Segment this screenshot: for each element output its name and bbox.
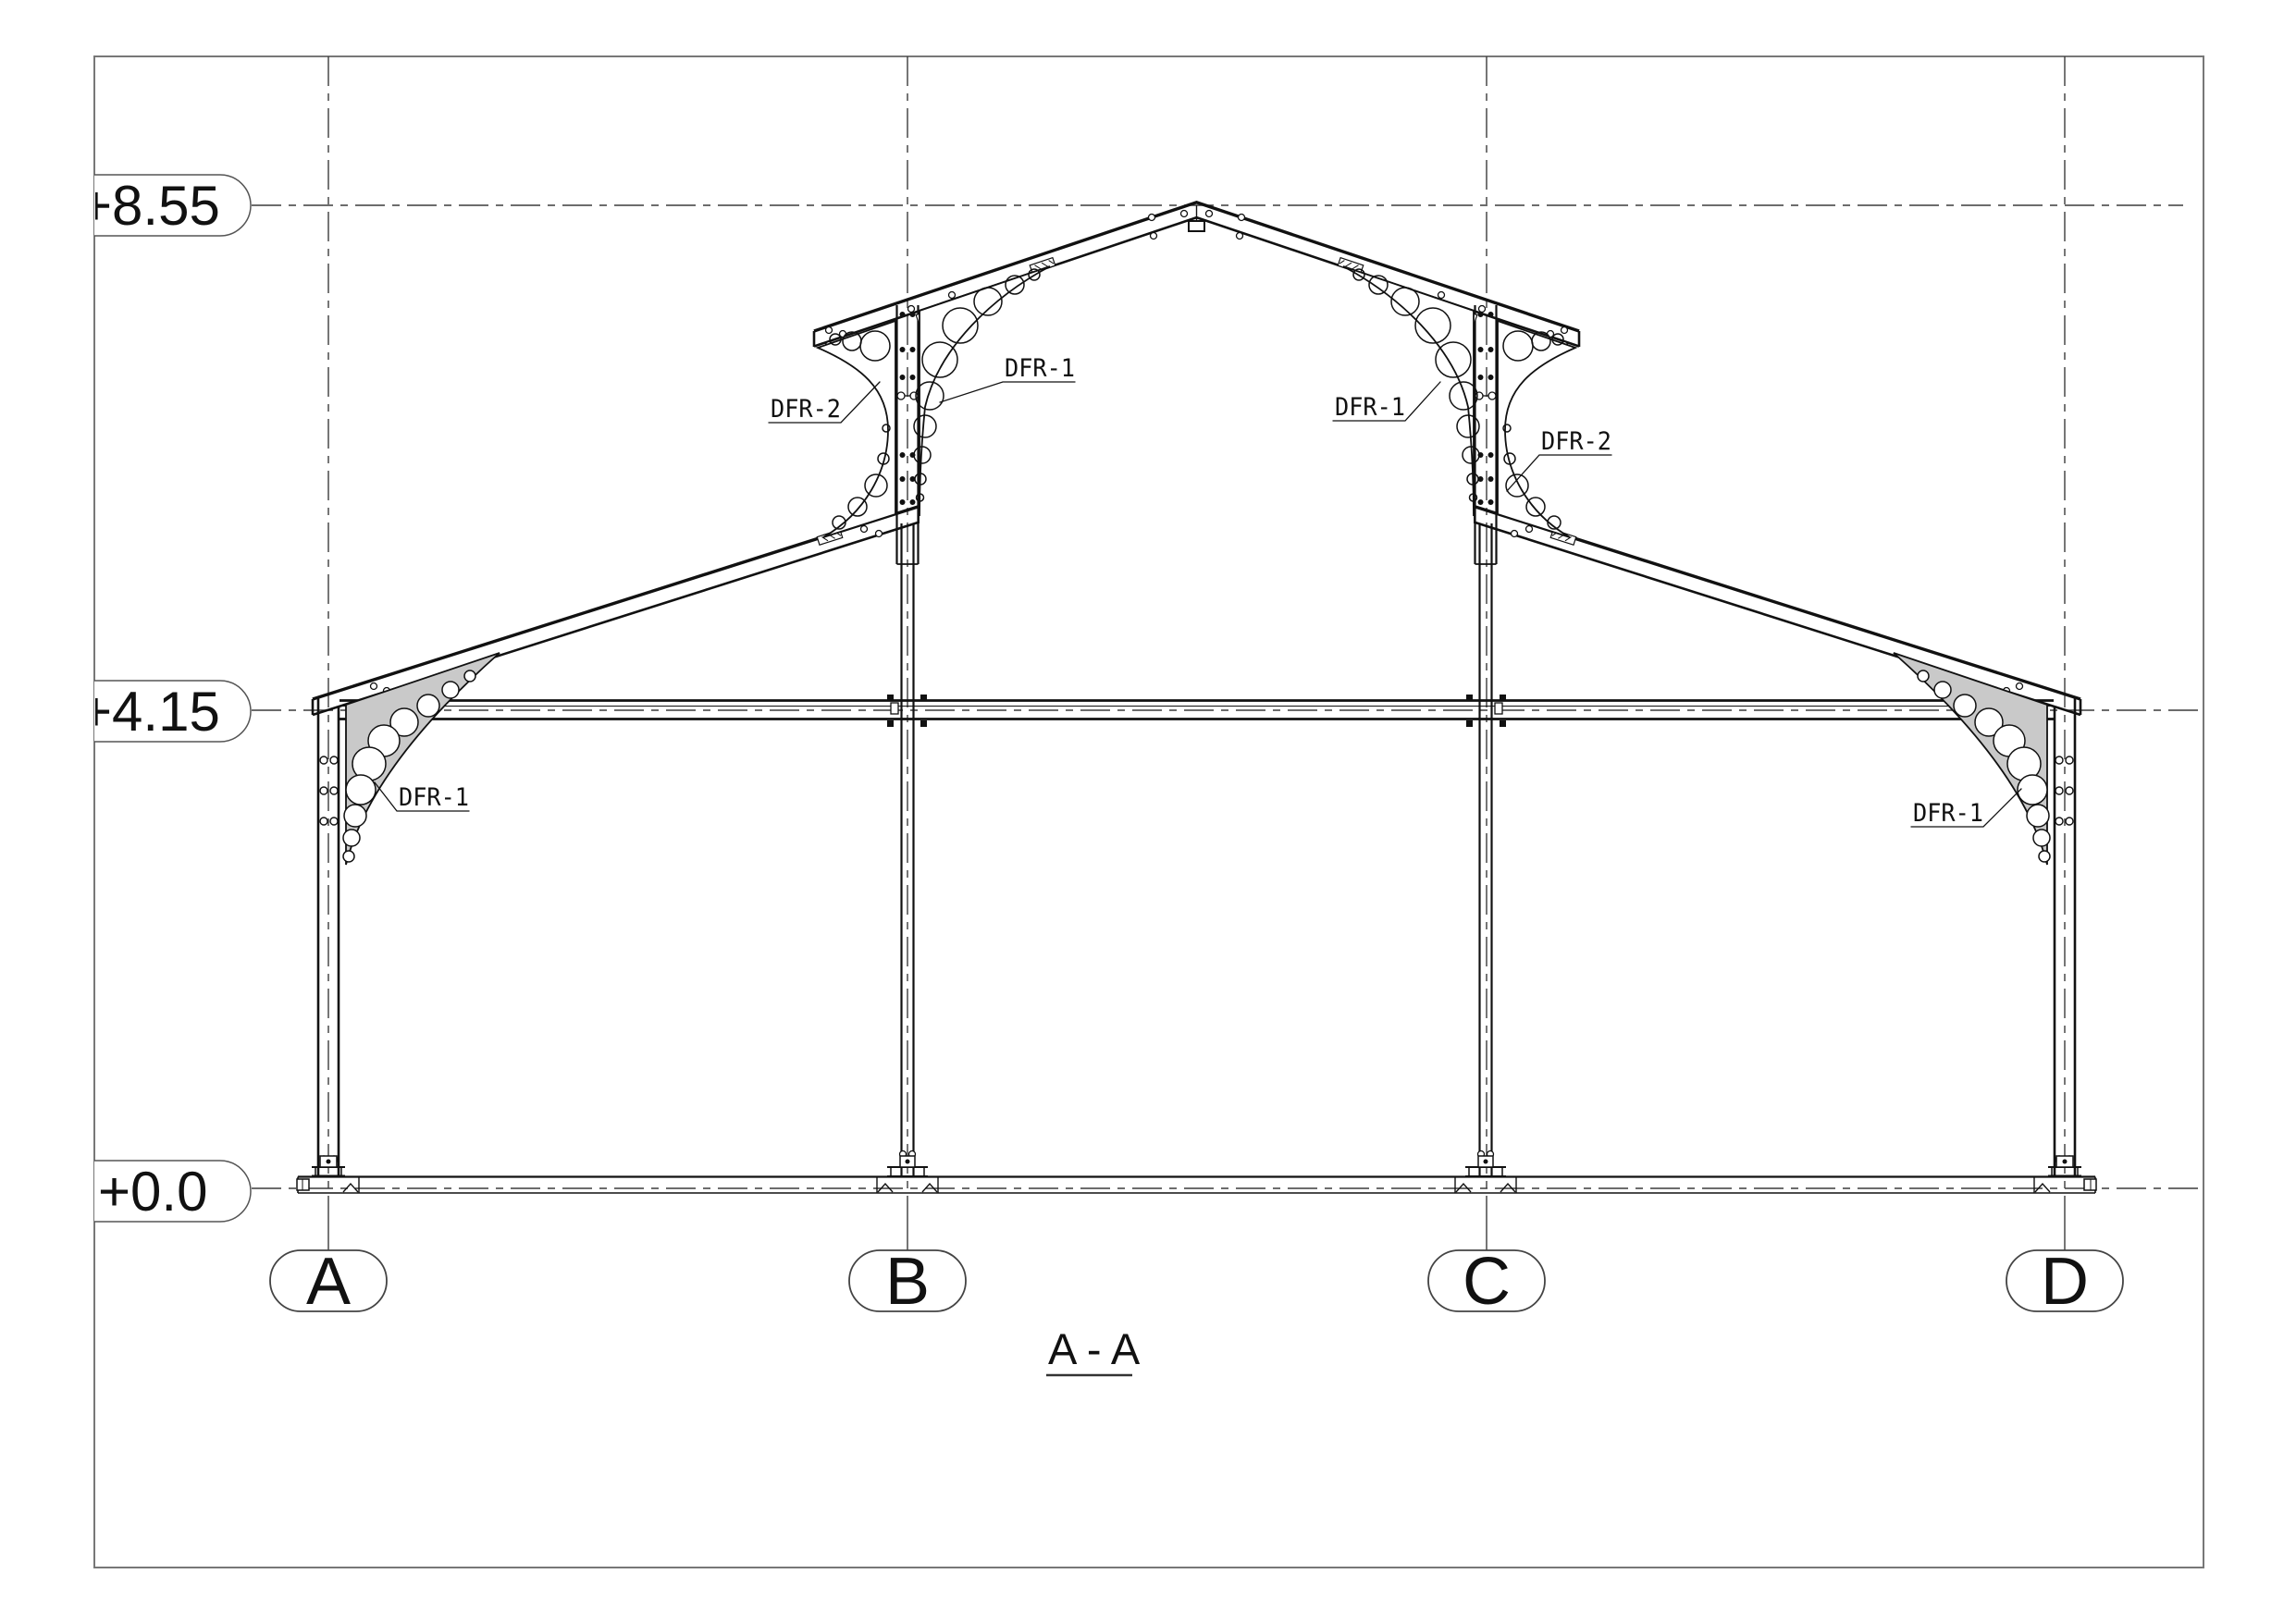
- gusset-dfr1-column-a: [343, 653, 500, 865]
- svg-text:DFR-1: DFR-1: [1913, 799, 1983, 828]
- grid-label-a: A: [306, 1245, 351, 1319]
- frame-left-half: [297, 203, 1197, 1193]
- gusset-dfr2-post-b: [818, 321, 895, 537]
- gusset-dfr1-post-b: [914, 266, 1050, 516]
- callout-dfr2-right: DFR-2: [1507, 427, 1611, 491]
- ground-beam: [298, 1177, 2095, 1194]
- svg-text:DFR-1: DFR-1: [1335, 393, 1405, 422]
- grid-label-c: C: [1463, 1245, 1511, 1319]
- lower-rafter-bolts: [371, 526, 883, 695]
- elevation-label-00: +0.0: [98, 1161, 207, 1223]
- drawing-frame: [94, 56, 2203, 1568]
- callouts: DFR-2 DFR-1 DFR-1 DFR-2 DFR-1 DFR-1: [375, 354, 2021, 828]
- callout-dfr2-left: DFR-2: [769, 382, 880, 424]
- cad-sheet: +8.55 +4.15 +0.0 A B C D DFR-2 DFR-1 DFR…: [0, 0, 2296, 1623]
- callout-dfr1-column-d: DFR-1: [1911, 789, 2021, 828]
- upper-rafter: [814, 203, 1197, 347]
- grid-label-b: B: [885, 1245, 930, 1319]
- section-title-block: A - A: [1046, 1324, 1141, 1375]
- datum-lines: [252, 56, 2200, 1250]
- callout-dfr1-column-a: DFR-1: [375, 782, 469, 812]
- elevation-label-415: +4.15: [80, 681, 220, 743]
- svg-text:DFR-2: DFR-2: [1541, 427, 1611, 456]
- frame-right-half: [1196, 203, 2096, 1193]
- section-drawing: +8.55 +4.15 +0.0 A B C D DFR-2 DFR-1 DFR…: [0, 0, 2296, 1623]
- grid-label-d: D: [2041, 1245, 2089, 1319]
- callout-dfr1-left: DFR-1: [940, 354, 1075, 402]
- elevation-markers: +8.55 +4.15 +0.0: [80, 175, 251, 1223]
- grid-bubbles: A B C D: [270, 1245, 2123, 1319]
- svg-text:DFR-2: DFR-2: [771, 395, 841, 424]
- section-title: A - A: [1048, 1324, 1141, 1373]
- svg-text:DFR-1: DFR-1: [1005, 354, 1075, 383]
- grid-bubble-connectors: [328, 1223, 2065, 1250]
- callout-dfr1-right: DFR-1: [1333, 382, 1440, 422]
- elevation-label-855: +8.55: [80, 175, 220, 237]
- svg-text:DFR-1: DFR-1: [399, 783, 469, 812]
